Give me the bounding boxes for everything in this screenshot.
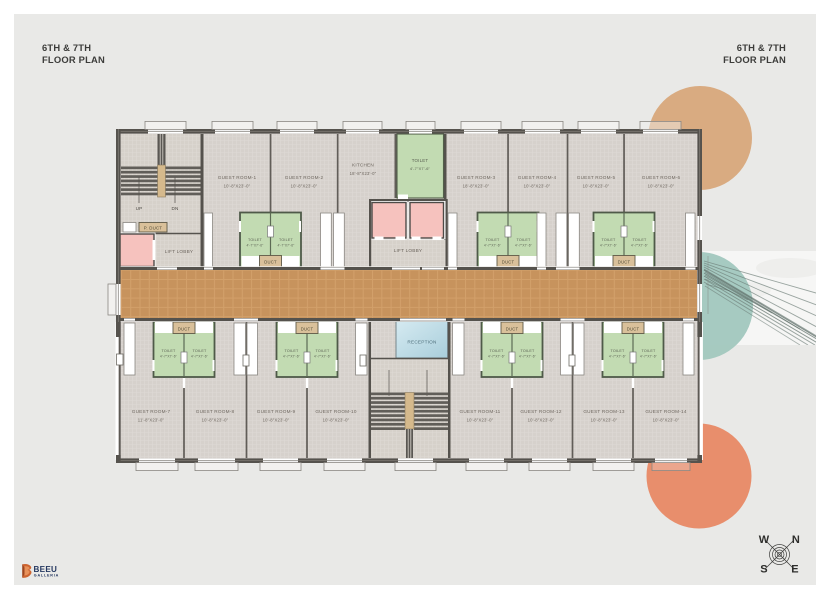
svg-text:6TH & 7TH: 6TH & 7TH — [737, 42, 786, 53]
svg-text:4'-7"X7'-6": 4'-7"X7'-6" — [484, 244, 501, 248]
svg-text:GUEST ROOM-10: GUEST ROOM-10 — [315, 409, 357, 414]
svg-text:TOILET: TOILET — [412, 158, 429, 163]
svg-text:TOILET: TOILET — [610, 349, 625, 353]
svg-text:4'-7"X7'-6": 4'-7"X7'-6" — [314, 355, 331, 359]
svg-text:TOILET: TOILET — [279, 238, 294, 242]
svg-text:TOILET: TOILET — [485, 238, 500, 242]
svg-text:LIFT LOBBY: LIFT LOBBY — [165, 249, 194, 254]
svg-text:10'-8"X23'-0": 10'-8"X23'-0" — [467, 418, 494, 423]
svg-text:18'-8"X23'-0": 18'-8"X23'-0" — [350, 171, 377, 176]
svg-text:4'-7"X7'-6": 4'-7"X7'-6" — [600, 244, 617, 248]
svg-text:10'-8"X23'-0": 10'-8"X23'-0" — [323, 418, 350, 423]
svg-text:TOILET: TOILET — [192, 349, 207, 353]
svg-text:TOILET: TOILET — [632, 238, 647, 242]
svg-text:18'-8"X23'-0": 18'-8"X23'-0" — [463, 184, 490, 189]
svg-text:4'-7"X7'-6": 4'-7"X7'-6" — [515, 244, 532, 248]
svg-text:TOILET: TOILET — [315, 349, 330, 353]
svg-text:GUEST ROOM-3: GUEST ROOM-3 — [457, 175, 496, 180]
svg-text:10'-8"X23'-0": 10'-8"X23'-0" — [583, 184, 610, 189]
svg-text:DUCT: DUCT — [618, 260, 631, 265]
svg-text:4'-7"X7'-6": 4'-7"X7'-6" — [191, 355, 208, 359]
svg-text:TOILET: TOILET — [489, 349, 504, 353]
svg-text:10'-8"X23'-0": 10'-8"X23'-0" — [524, 184, 551, 189]
svg-text:4'-7"X7'-6": 4'-7"X7'-6" — [160, 355, 177, 359]
svg-text:GUEST ROOM-7: GUEST ROOM-7 — [132, 409, 171, 414]
svg-text:4'-7"X7'-6": 4'-7"X7'-6" — [277, 244, 294, 248]
svg-text:4'-7"X7'-6": 4'-7"X7'-6" — [609, 355, 626, 359]
svg-text:DUCT: DUCT — [178, 326, 191, 331]
svg-text:GUEST ROOM-6: GUEST ROOM-6 — [642, 175, 681, 180]
svg-text:10'-8"X23'-0": 10'-8"X23'-0" — [591, 418, 618, 423]
svg-text:DN: DN — [171, 206, 178, 211]
svg-text:GUEST ROOM-11: GUEST ROOM-11 — [460, 409, 501, 414]
svg-text:TOILET: TOILET — [520, 349, 535, 353]
svg-text:4'-7"X7'-6": 4'-7"X7'-6" — [640, 355, 657, 359]
svg-text:LIFT LOBBY: LIFT LOBBY — [394, 248, 423, 253]
svg-text:DUCT: DUCT — [506, 326, 519, 331]
svg-text:GUEST ROOM-2: GUEST ROOM-2 — [285, 175, 324, 180]
svg-text:TOILET: TOILET — [284, 349, 299, 353]
svg-text:GUEST ROOM-12: GUEST ROOM-12 — [520, 409, 562, 414]
svg-text:4'-7"X7'-6": 4'-7"X7'-6" — [283, 355, 300, 359]
svg-text:4'-7"X7'-6": 4'-7"X7'-6" — [488, 355, 505, 359]
svg-text:DUCT: DUCT — [301, 326, 314, 331]
svg-text:DUCT: DUCT — [627, 326, 640, 331]
svg-text:6TH & 7TH: 6TH & 7TH — [42, 42, 91, 53]
svg-text:TOILET: TOILET — [248, 238, 263, 242]
svg-text:10'-8"X23'-0": 10'-8"X23'-0" — [653, 418, 680, 423]
svg-text:S: S — [760, 564, 768, 576]
svg-text:DUCT: DUCT — [502, 260, 515, 265]
svg-text:GUEST ROOM-4: GUEST ROOM-4 — [518, 175, 557, 180]
svg-text:GALLERIA: GALLERIA — [34, 574, 59, 578]
svg-text:TOILET: TOILET — [161, 349, 176, 353]
svg-text:P. DUCT: P. DUCT — [144, 226, 163, 231]
svg-text:DUCT: DUCT — [264, 260, 277, 265]
svg-text:10'-8"X23'-0": 10'-8"X23'-0" — [291, 184, 318, 189]
svg-text:TOILET: TOILET — [516, 238, 531, 242]
svg-text:10'-8"X23'-0": 10'-8"X23'-0" — [528, 418, 555, 423]
svg-text:E: E — [791, 564, 799, 576]
svg-text:GUEST ROOM-8: GUEST ROOM-8 — [196, 409, 235, 414]
svg-text:10'-8"X23'-0": 10'-8"X23'-0" — [648, 184, 675, 189]
svg-text:RECEPTION: RECEPTION — [407, 340, 436, 345]
svg-text:GUEST ROOM-13: GUEST ROOM-13 — [583, 409, 625, 414]
svg-text:FLOOR PLAN: FLOOR PLAN — [723, 54, 786, 65]
svg-text:KITCHEN: KITCHEN — [352, 163, 374, 168]
svg-text:4'-7"X7'-6": 4'-7"X7'-6" — [246, 244, 263, 248]
svg-text:FLOOR PLAN: FLOOR PLAN — [42, 54, 105, 65]
svg-text:UP: UP — [136, 206, 143, 211]
svg-text:4'-7"X7'-6": 4'-7"X7'-6" — [631, 244, 648, 248]
svg-text:N: N — [792, 534, 800, 546]
svg-text:W: W — [759, 534, 770, 546]
svg-text:BEEU: BEEU — [34, 565, 58, 574]
svg-text:GUEST ROOM-1: GUEST ROOM-1 — [218, 175, 257, 180]
svg-text:GUEST ROOM-9: GUEST ROOM-9 — [257, 409, 296, 414]
svg-text:4'-7"X7'-6": 4'-7"X7'-6" — [519, 355, 536, 359]
svg-text:10'-8"X23'-0": 10'-8"X23'-0" — [263, 418, 290, 423]
svg-text:TOILET: TOILET — [601, 238, 616, 242]
svg-text:TOILET: TOILET — [641, 349, 656, 353]
svg-text:11'-8"X23'-0": 11'-8"X23'-0" — [138, 418, 165, 423]
svg-text:GUEST ROOM-5: GUEST ROOM-5 — [577, 175, 616, 180]
svg-text:10'-8"X23'-0": 10'-8"X23'-0" — [202, 418, 229, 423]
svg-text:10'-8"X23'-0": 10'-8"X23'-0" — [224, 184, 251, 189]
svg-text:GUEST ROOM-14: GUEST ROOM-14 — [645, 409, 687, 414]
svg-text:4'-7"X7'-6": 4'-7"X7'-6" — [410, 166, 431, 171]
